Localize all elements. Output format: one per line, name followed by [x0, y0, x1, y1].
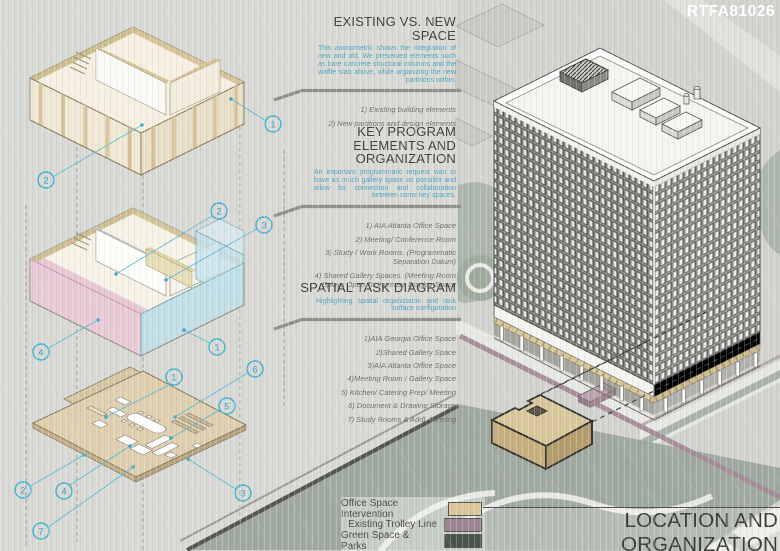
legend-item: Office Space Intervention [341, 502, 482, 515]
list-item: 6) Document & Drawing Storage [348, 401, 456, 410]
section-heading: KEY PROGRAM ELEMENTS AND ORGANIZATION [292, 125, 456, 166]
list-item: 3)AIA Atlanta Office Space [367, 361, 456, 370]
title-block: LOCATION AND ORGANIZATION [483, 507, 780, 551]
list-item: 1) Existing building elements [361, 105, 456, 114]
legend-swatch-trolley [444, 518, 482, 532]
sheet-code: RTFA81026 [687, 3, 775, 21]
callout-number: 5 [224, 402, 229, 413]
callout-number: 4 [61, 487, 66, 498]
legend: Office Space Intervention Existing Troll… [341, 497, 485, 551]
legend-swatch-parks [444, 534, 482, 548]
callout-number: 4 [38, 348, 43, 359]
legend-swatch-office [448, 502, 482, 516]
section-description: This axonometric shows the integration o… [292, 45, 456, 84]
section-key-program: KEY PROGRAM ELEMENTS AND ORGANIZATION An… [292, 125, 456, 293]
list-item: 3) Study / Work Rooms. (Programmatic Sep… [314, 248, 456, 267]
list-item: 7) Study Rooms & Addl. Meeting [347, 415, 456, 424]
callout-number: 1 [171, 373, 176, 384]
list-item: 2)Shared Gallery Space [376, 348, 456, 357]
section-item-list: 1)AIA Georgia Office Space 2)Shared Gall… [292, 334, 456, 428]
section-spatial-task: SPATIAL TASK DIAGRAM Highlighting spatia… [292, 281, 456, 428]
legend-label: Green Space & Parks [341, 530, 437, 551]
callout-number: 1 [270, 120, 275, 131]
callout-number: 7 [38, 527, 43, 538]
section-existing-vs-new: EXISTING VS. NEW SPACE This axonometric … [292, 15, 456, 132]
list-item: 5) Kitchen/ Catering Prep/ Meeting [341, 388, 456, 397]
list-item: 4)Meeting Room / Gallery Space [347, 374, 456, 383]
axon-diagram-1 [30, 27, 244, 175]
section-description: An important programmatic request was to… [292, 169, 456, 200]
callout-number: 1 [214, 343, 219, 354]
section-divider [272, 314, 462, 331]
list-item: 2) Meeting/ Conference Room [356, 235, 456, 244]
callout-number: 2 [43, 176, 48, 187]
legend-label: Existing Trolley Line [348, 519, 437, 530]
section-description: Highlighting spatial organization and ta… [292, 298, 456, 314]
presentation-board: 1 2 2 3 1 4 6 1 5 2 4 3 7 EXISTING VS. N… [0, 0, 780, 551]
callout-number: 2 [216, 207, 221, 218]
list-item: 1) AIA Atlanta Office Space [366, 221, 456, 230]
section-heading: EXISTING VS. NEW SPACE [292, 15, 456, 42]
section-divider [272, 85, 462, 102]
callout-number: 6 [252, 365, 257, 376]
legend-item: Green Space & Parks [341, 534, 482, 547]
list-item: 1)AIA Georgia Office Space [364, 334, 456, 343]
page-title: LOCATION AND ORGANIZATION [621, 509, 778, 551]
callout-number: 3 [261, 221, 266, 232]
section-heading: SPATIAL TASK DIAGRAM [292, 281, 456, 295]
section-divider [272, 201, 462, 218]
axon-diagram-3 [33, 367, 246, 482]
axon-diagram-2 [30, 208, 244, 356]
legend-label: Office Space Intervention [341, 498, 441, 520]
callout-number: 3 [240, 489, 245, 500]
callout-number: 2 [20, 486, 25, 497]
